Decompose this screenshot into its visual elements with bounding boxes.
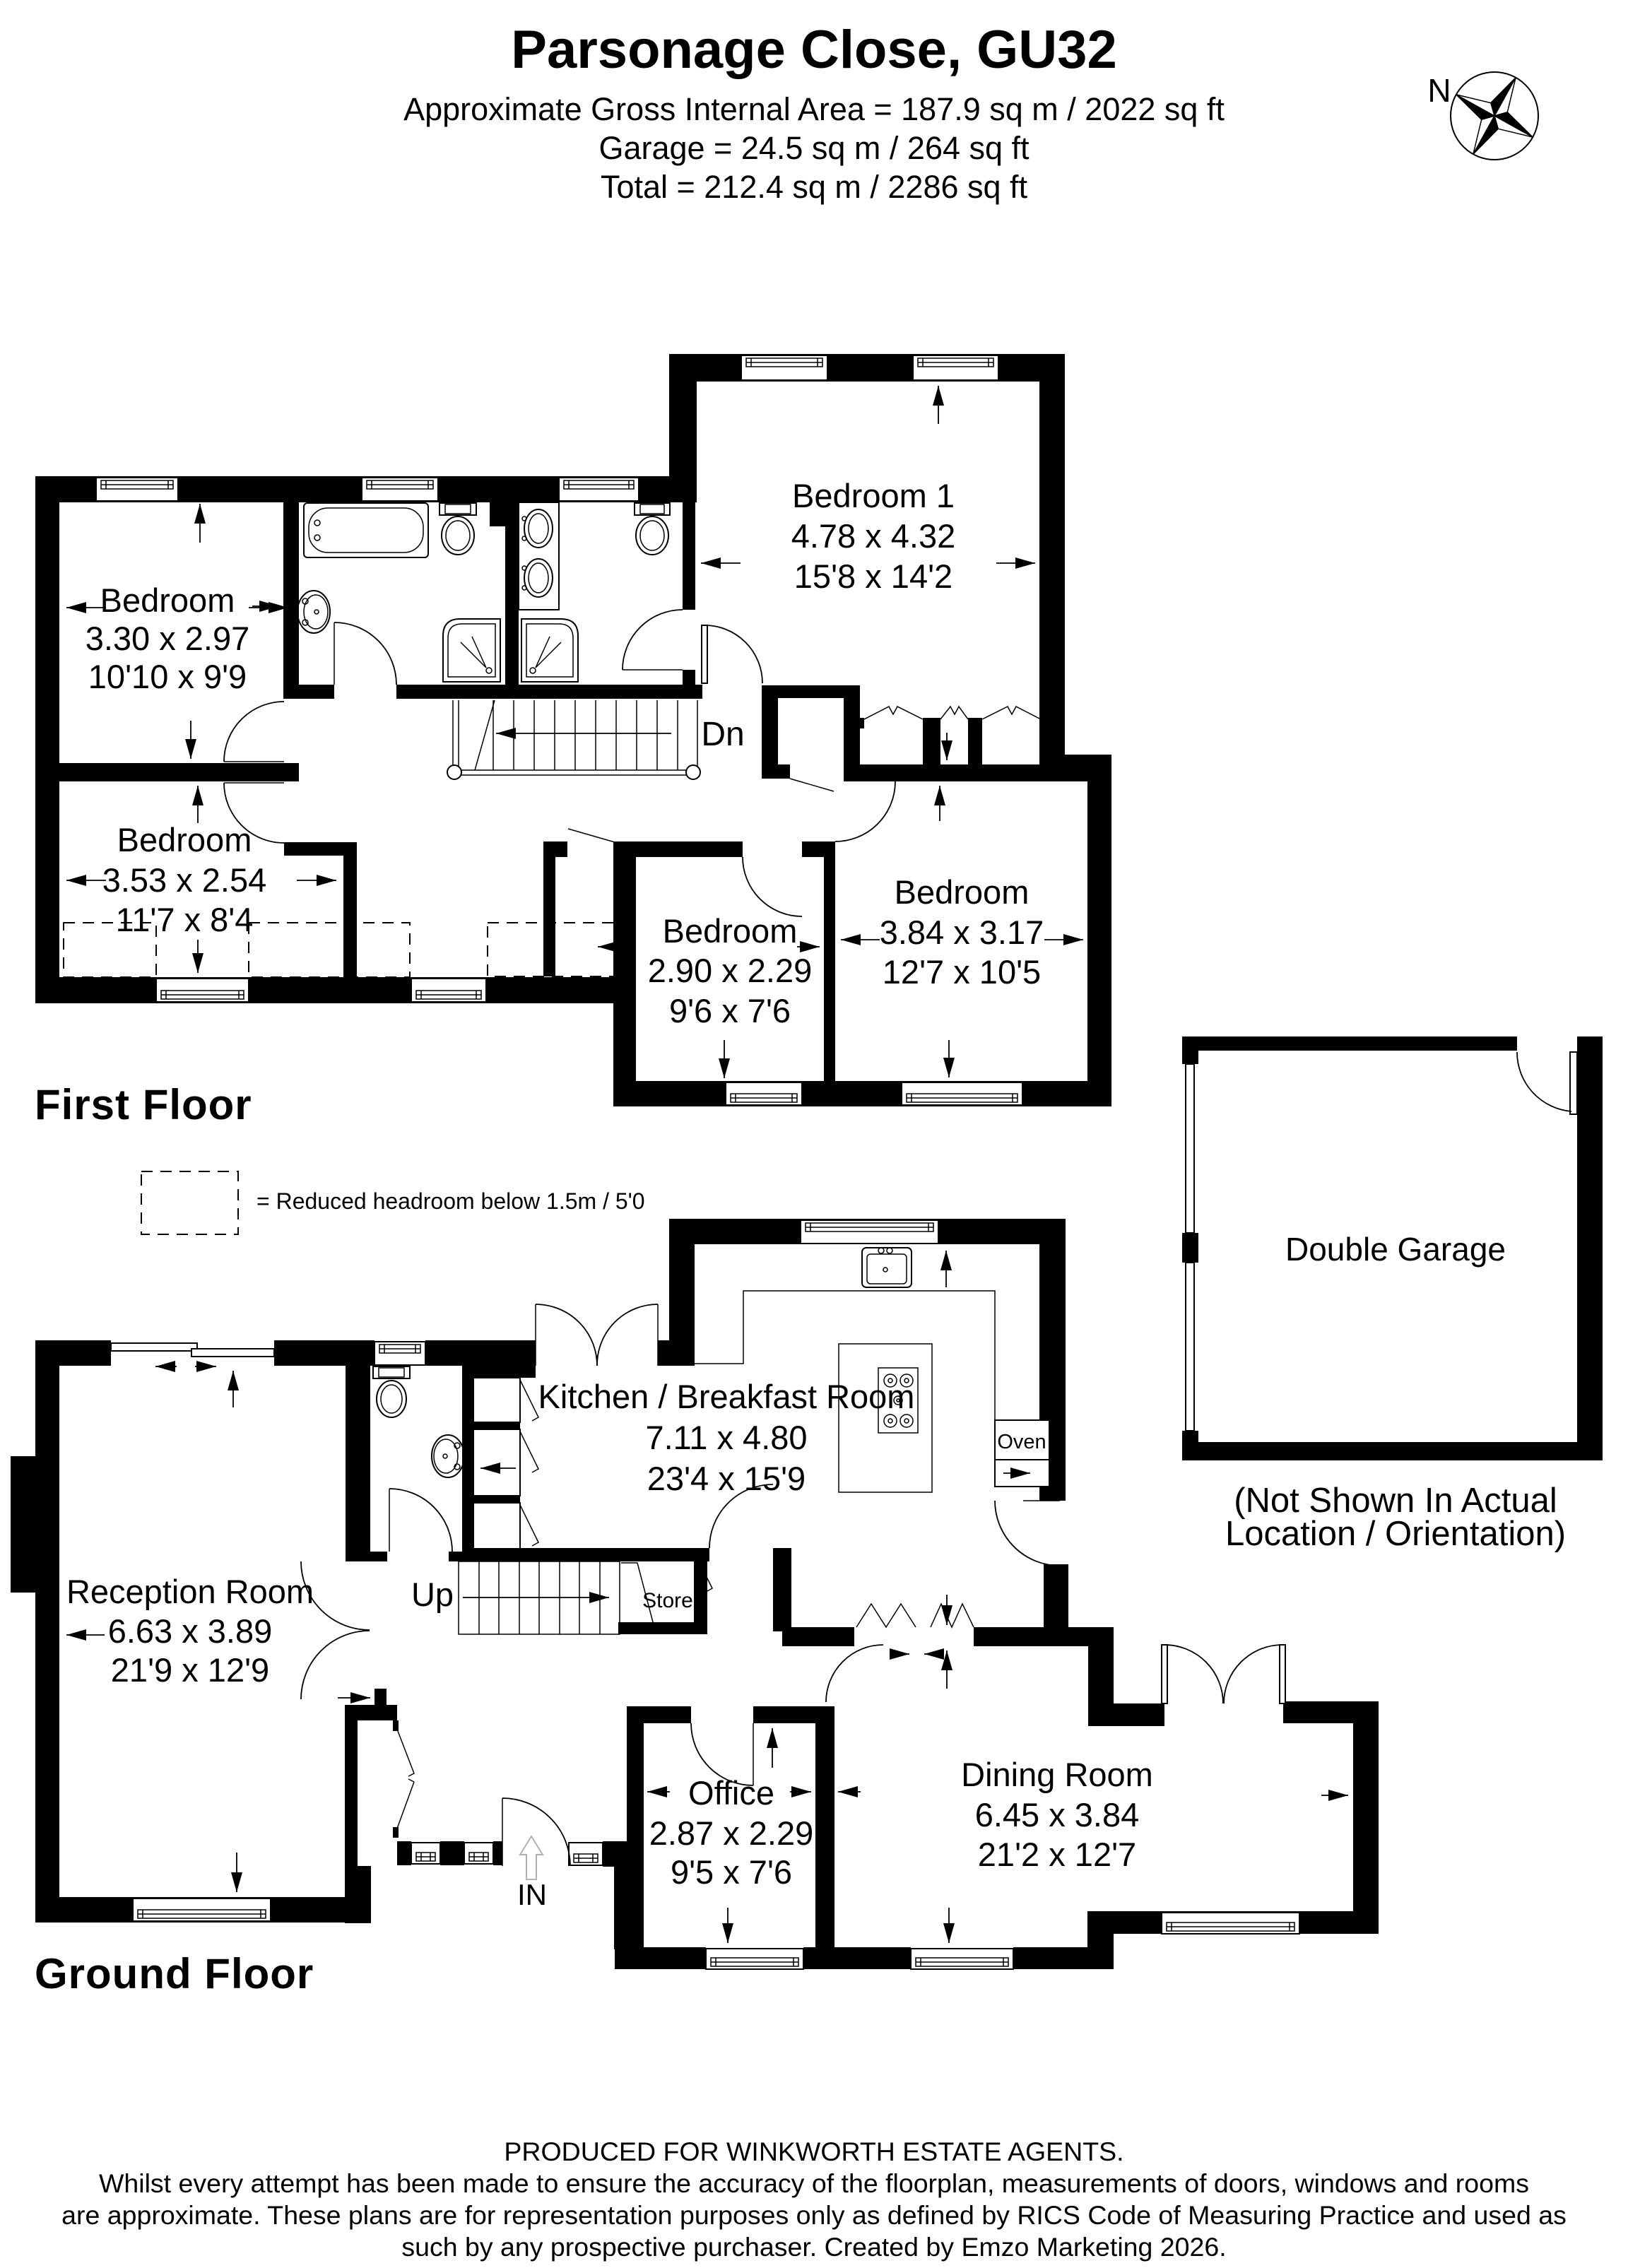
svg-text:11'7 x 8'4: 11'7 x 8'4 — [116, 901, 254, 938]
svg-text:(Not Shown In Actual: (Not Shown In Actual — [1234, 1482, 1557, 1520]
svg-text:10'10 x 9'9: 10'10 x 9'9 — [88, 658, 247, 695]
svg-text:7.11 x 4.80: 7.11 x 4.80 — [645, 1419, 807, 1456]
svg-text:2.87 x 2.29: 2.87 x 2.29 — [649, 1814, 814, 1852]
svg-text:Up: Up — [411, 1576, 454, 1613]
svg-text:N: N — [1427, 72, 1451, 109]
svg-text:such by any prospective purcha: such by any prospective purchaser. Creat… — [401, 2232, 1226, 2262]
svg-text:21'9 x 12'9: 21'9 x 12'9 — [111, 1651, 269, 1689]
svg-text:4.78 x 4.32: 4.78 x 4.32 — [791, 517, 956, 555]
svg-text:Total = 212.4 sq m / 2286 sq f: Total = 212.4 sq m / 2286 sq ft — [601, 169, 1028, 205]
svg-text:= Reduced headroom below 1.5m: = Reduced headroom below 1.5m / 5'0 — [256, 1188, 645, 1214]
svg-text:Bedroom: Bedroom — [117, 821, 252, 858]
svg-text:Kitchen / Breakfast Room: Kitchen / Breakfast Room — [538, 1378, 915, 1415]
svg-text:Ground Floor: Ground Floor — [35, 1950, 314, 1997]
svg-text:Oven: Oven — [997, 1431, 1046, 1453]
svg-text:Location / Orientation): Location / Orientation) — [1225, 1515, 1566, 1553]
svg-text:3.53 x 2.54: 3.53 x 2.54 — [102, 861, 267, 899]
svg-text:9'5 x 7'6: 9'5 x 7'6 — [671, 1853, 792, 1891]
svg-text:23'4 x 15'9: 23'4 x 15'9 — [647, 1460, 806, 1497]
svg-text:Garage = 24.5 sq m / 264 sq ft: Garage = 24.5 sq m / 264 sq ft — [598, 130, 1030, 166]
svg-text:First Floor: First Floor — [35, 1081, 252, 1128]
svg-text:Double Garage: Double Garage — [1285, 1231, 1506, 1268]
svg-text:Dining Room: Dining Room — [961, 1756, 1153, 1793]
svg-text:2.90 x 2.29: 2.90 x 2.29 — [648, 952, 813, 989]
svg-text:Store: Store — [642, 1589, 693, 1612]
svg-text:Bedroom: Bedroom — [663, 912, 798, 950]
svg-text:Bedroom: Bedroom — [100, 581, 235, 619]
svg-text:15'8 x 14'2: 15'8 x 14'2 — [794, 557, 952, 595]
svg-text:3.30 x 2.97: 3.30 x 2.97 — [85, 620, 250, 657]
svg-text:IN: IN — [517, 1878, 547, 1911]
svg-text:6.63 x 3.89: 6.63 x 3.89 — [108, 1612, 273, 1650]
svg-text:Whilst every attempt has been: Whilst every attempt has been made to en… — [99, 2168, 1529, 2198]
svg-text:Bedroom: Bedroom — [895, 873, 1030, 911]
svg-text:PRODUCED FOR WINKWORTH ESTATE: PRODUCED FOR WINKWORTH ESTATE AGENTS. — [504, 2137, 1123, 2166]
svg-text:9'6 x 7'6: 9'6 x 7'6 — [669, 992, 791, 1029]
svg-text:Parsonage Close, GU32: Parsonage Close, GU32 — [511, 20, 1116, 80]
svg-text:are approximate. These plans a: are approximate. These plans are for rep… — [61, 2200, 1567, 2230]
svg-text:Dn: Dn — [701, 716, 744, 753]
svg-text:21'2 x 12'7: 21'2 x 12'7 — [978, 1836, 1136, 1873]
svg-text:Approximate Gross Internal Are: Approximate Gross Internal Area = 187.9 … — [403, 91, 1225, 127]
svg-text:Reception Room: Reception Room — [66, 1573, 314, 1610]
svg-text:12'7 x 10'5: 12'7 x 10'5 — [883, 953, 1041, 991]
svg-text:3.84 x 3.17: 3.84 x 3.17 — [880, 914, 1044, 951]
svg-text:6.45 x 3.84: 6.45 x 3.84 — [975, 1796, 1140, 1833]
svg-text:Office: Office — [688, 1774, 774, 1812]
svg-text:Bedroom 1: Bedroom 1 — [792, 477, 955, 514]
